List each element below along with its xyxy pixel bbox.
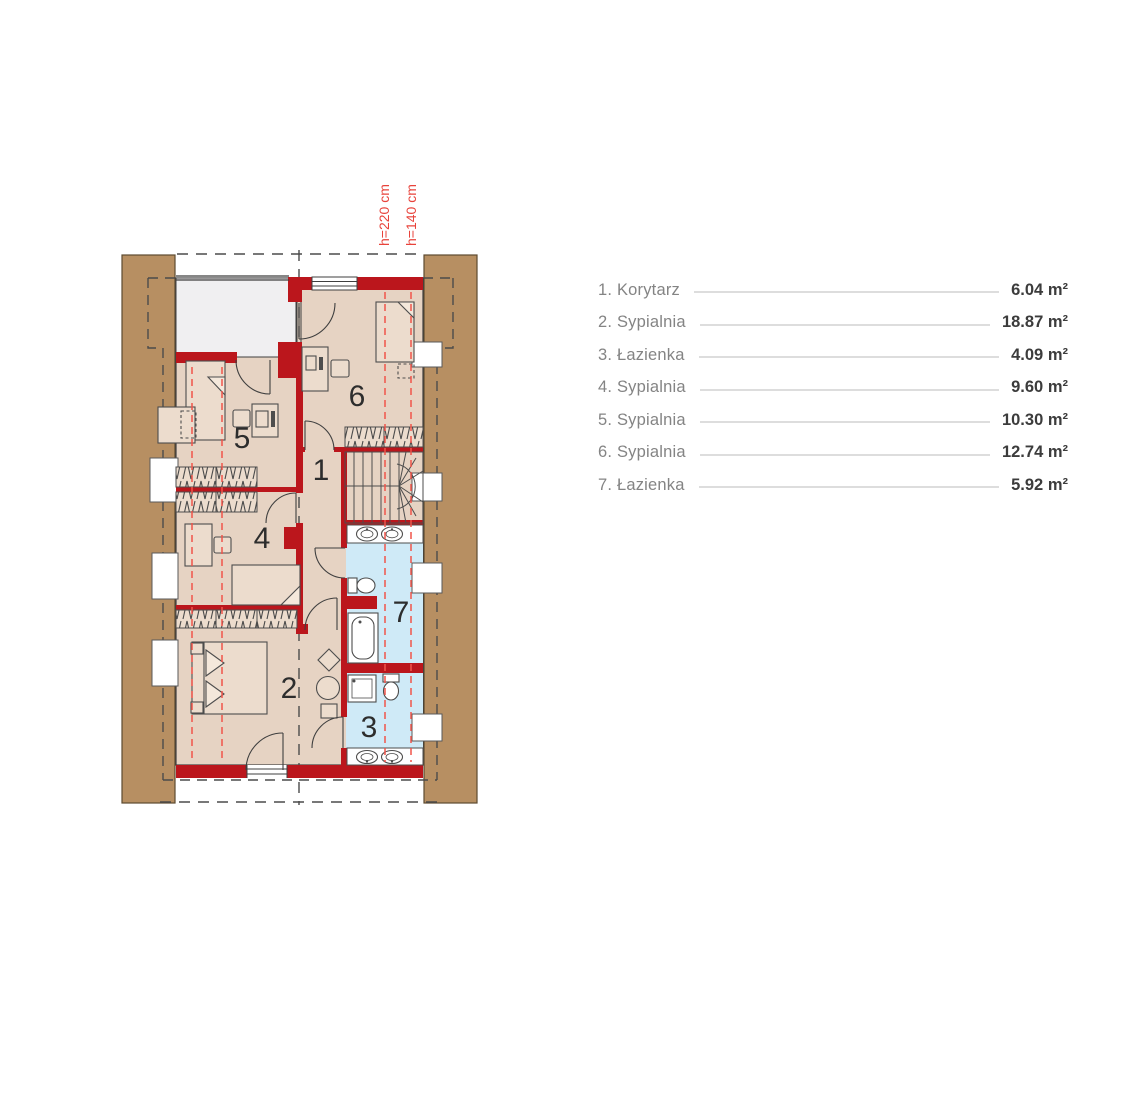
legend-room-area: 6.04 m² xyxy=(1011,281,1068,300)
wardrobe-room5 xyxy=(176,467,257,487)
legend-room-label: 1. Korytarz xyxy=(598,281,680,300)
bed-room4 xyxy=(232,565,300,605)
legend-row-6: 6. Sypialnia 12.74 m² xyxy=(598,437,1068,470)
legend-room-area: 18.87 m² xyxy=(1002,313,1068,332)
legend-room-label: 6. Sypialnia xyxy=(598,443,686,462)
room-number-5: 5 xyxy=(234,422,251,455)
height-labels: h=220 cm h=140 cm xyxy=(376,184,419,246)
room-number-3: 3 xyxy=(361,711,378,744)
legend-leader-line xyxy=(699,486,1000,488)
height-label-220: h=220 cm xyxy=(376,184,392,246)
legend-leader-line xyxy=(700,454,990,456)
room-number-4: 4 xyxy=(254,522,271,555)
legend-room-label: 7. Łazienka xyxy=(598,476,685,495)
bed-room2 xyxy=(191,642,267,714)
room-legend: 1. Korytarz 6.04 m² 2. Sypialnia 18.87 m… xyxy=(598,274,1068,502)
legend-row-2: 2. Sypialnia 18.87 m² xyxy=(598,307,1068,340)
legend-row-3: 3. Łazienka 4.09 m² xyxy=(598,339,1068,372)
legend-row-1: 1. Korytarz 6.04 m² xyxy=(598,274,1068,307)
legend-room-area: 4.09 m² xyxy=(1011,346,1068,365)
legend-row-7: 7. Łazienka 5.92 m² xyxy=(598,469,1068,502)
legend-room-area: 9.60 m² xyxy=(1011,378,1068,397)
legend-leader-line xyxy=(694,291,999,293)
legend-row-4: 4. Sypialnia 9.60 m² xyxy=(598,372,1068,405)
shower-bath3 xyxy=(348,675,376,702)
legend-leader-line xyxy=(700,421,990,423)
legend-room-label: 4. Sypialnia xyxy=(598,378,686,397)
wardrobe-room2 xyxy=(176,610,297,628)
room-number-6: 6 xyxy=(349,380,366,413)
floor-plan-drawing: 1 2 3 4 5 6 7 h=220 cm h=140 cm xyxy=(0,0,1132,1100)
room-number-1: 1 xyxy=(313,454,330,487)
bathtub-bath7 xyxy=(348,613,378,663)
legend-leader-line xyxy=(700,389,999,391)
legend-room-area: 12.74 m² xyxy=(1002,443,1068,462)
legend-room-label: 5. Sypialnia xyxy=(598,411,686,430)
legend-row-5: 5. Sypialnia 10.30 m² xyxy=(598,404,1068,437)
room-number-7: 7 xyxy=(393,596,410,629)
floor-plan-page: 1 2 3 4 5 6 7 h=220 cm h=140 cm 1. Koryt… xyxy=(0,0,1132,1100)
legend-leader-line xyxy=(699,356,1000,358)
legend-leader-line xyxy=(700,324,990,326)
legend-room-label: 3. Łazienka xyxy=(598,346,685,365)
legend-room-label: 2. Sypialnia xyxy=(598,313,686,332)
height-label-140: h=140 cm xyxy=(403,184,419,246)
room-number-2: 2 xyxy=(281,672,298,705)
legend-room-area: 5.92 m² xyxy=(1011,476,1068,495)
legend-room-area: 10.30 m² xyxy=(1002,411,1068,430)
wardrobe-room4 xyxy=(176,492,257,512)
desk-room5-left xyxy=(158,407,196,443)
toilet-bath7 xyxy=(348,578,375,593)
